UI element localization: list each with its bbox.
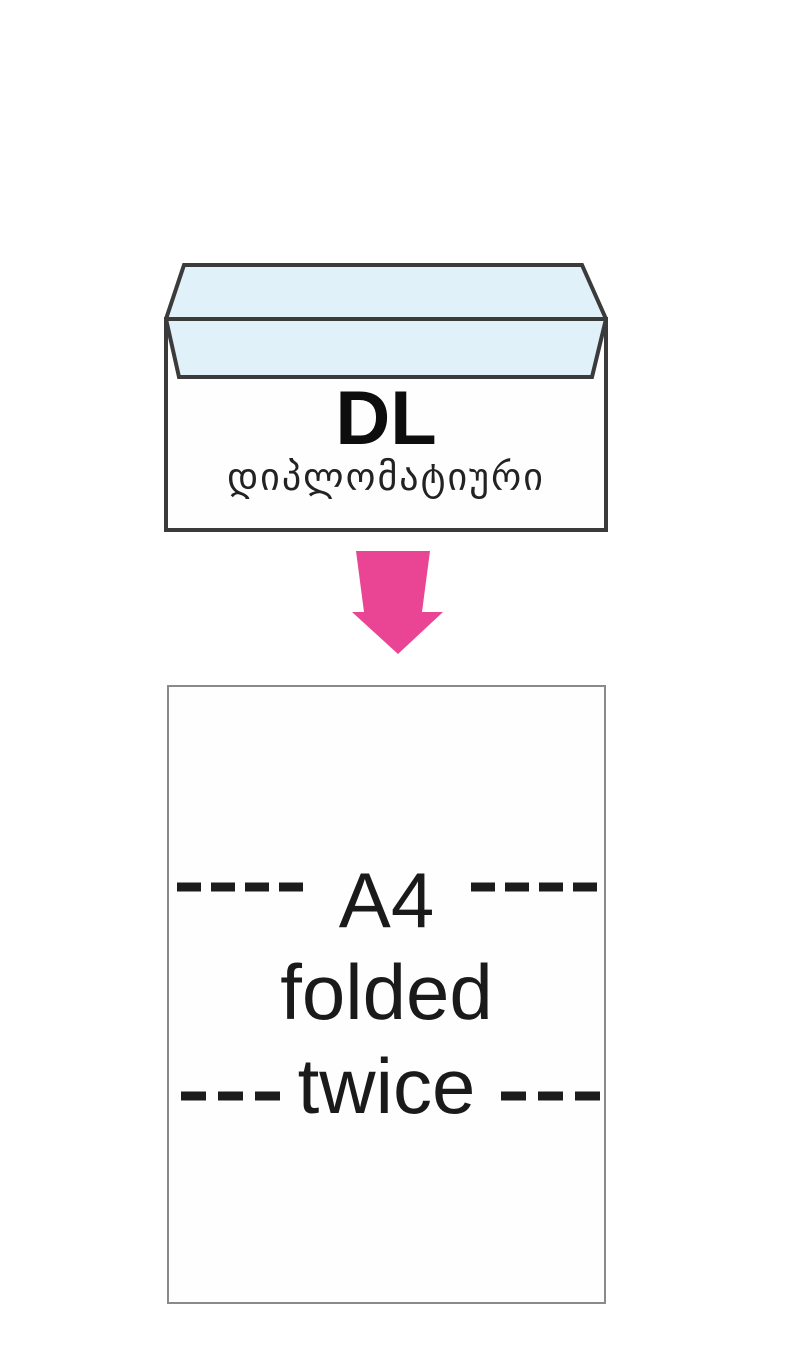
envelope-size-label: DL xyxy=(166,381,606,457)
sheet-label-twice: twice xyxy=(168,1047,605,1125)
arrow-down-icon xyxy=(352,551,443,654)
diagram-graphics xyxy=(0,0,800,1355)
sheet-label-a4: A4 xyxy=(168,861,605,939)
envelope-type-label: დიპლომატიური xyxy=(136,458,636,496)
envelope-size-diagram: DL დიპლომატიური A4 folded twice xyxy=(0,0,800,1355)
sheet-label-folded: folded xyxy=(168,953,605,1031)
